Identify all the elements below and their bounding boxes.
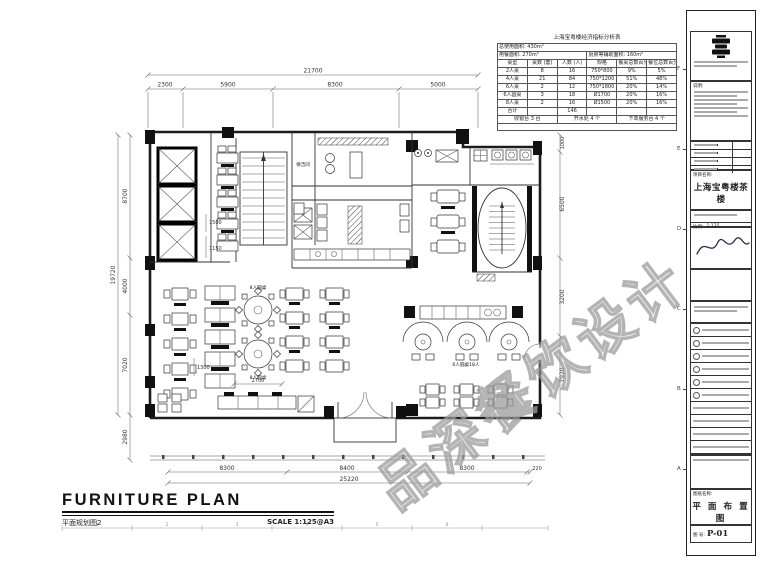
dim-inner-2700: 2700 xyxy=(252,378,265,384)
east-booth-strip xyxy=(431,190,465,253)
plan-subtitle-cn: 平面规划图2 xyxy=(62,518,101,528)
dim-left-2: 4000 xyxy=(122,278,129,293)
title-block: F E D C B A 说明: xyxy=(686,10,756,556)
title-underline-thin xyxy=(62,515,334,516)
dim-right-2: 6500 xyxy=(559,196,566,211)
econ-footer-row: 收银台 3 台 开水处 4 个 下单服务台 4 个 xyxy=(498,116,677,124)
drawing-number: P-01 xyxy=(707,529,728,539)
waiting-area-tables xyxy=(217,138,238,262)
dim-bot-4: 220 xyxy=(532,466,542,472)
drawing-number-label: 图 号: xyxy=(691,531,707,538)
project-name-box: 项目名称: 上海宝粤楼茶楼 xyxy=(690,170,752,210)
economic-indicator-table: 上海宝粤楼经济指标分析表 总使用面积: 430m² 用餐面积: 270m² 厨房… xyxy=(497,34,677,131)
dim-bot-2: 8400 xyxy=(339,465,354,472)
sheet-footer: FURNITURE PLAN 平面规划图2 SCALE 1:125@A3 xyxy=(62,491,334,528)
dim-top-total: 21700 xyxy=(303,68,322,75)
dim-top-2: 5900 xyxy=(220,82,235,89)
approval-rows xyxy=(690,323,752,455)
title-underline xyxy=(62,511,334,513)
econ-area-dining: 用餐面积: 270m² xyxy=(498,52,587,60)
dim-left-1: 8700 xyxy=(122,188,129,203)
project-name: 上海宝粤楼茶楼 xyxy=(691,181,751,205)
round-table-label-a: 8人圆桌 xyxy=(250,284,267,291)
dim-left-3: 7020 xyxy=(122,357,129,372)
dim-right-4: 7920 xyxy=(559,367,566,382)
dim-top-1: 2300 xyxy=(157,82,172,89)
kitchen-block: 保洁间 xyxy=(292,132,412,268)
econ-row: 8人桌2 16Ø1500 20%16% xyxy=(498,100,677,108)
dim-inner-1500: 1500 xyxy=(209,220,222,226)
project-label: 项目名称: xyxy=(691,171,751,178)
dim-bot-3: 8300 xyxy=(459,465,474,472)
main-staircase xyxy=(240,152,287,245)
dim-bot-total: 25220 xyxy=(339,476,358,483)
scale-rows: 比例: 1:125 xyxy=(690,210,752,227)
ruler-6: 6 xyxy=(446,522,449,527)
econ-area-total: 总使用面积: 430m² xyxy=(498,44,677,52)
zone-letter: E xyxy=(677,146,680,152)
econ-area-kitchen: 厨房等辅助面积: 160m² xyxy=(587,52,677,60)
zone-letter: C xyxy=(677,306,681,312)
dim-top-4: 5000 xyxy=(430,82,445,89)
dim-bot-1: 8300 xyxy=(219,465,234,472)
oval-staircase xyxy=(472,186,532,281)
zone-letter: A xyxy=(677,466,681,472)
round-tables-8p: 8人圆桌 8人圆桌 xyxy=(235,284,280,381)
econ-row: 4人桌21 84750*1200 51%48% xyxy=(498,76,677,84)
dim-right-1: 1000 xyxy=(560,137,566,150)
dim-left-4: 2980 xyxy=(122,429,129,444)
revision-table xyxy=(690,141,752,170)
dim-inner-1150: 1150 xyxy=(209,246,222,252)
econ-header-row: 桌型桌数 (套) 人数 (人)规格 餐桌总数百分比餐位总数百分比 xyxy=(498,60,677,68)
drawing-name: 平 面 布 置 图 xyxy=(691,500,751,524)
fine-print-lines xyxy=(690,301,752,323)
company-logo-box xyxy=(690,31,752,81)
dim-right-3: 3200 xyxy=(559,289,566,304)
fine-print-lines xyxy=(694,61,748,63)
drawing-name-label: 图纸名称: xyxy=(691,490,751,497)
southeast-dining: 6人圆桌18人 xyxy=(403,306,529,408)
zone-letter: B xyxy=(677,386,681,392)
notes-box: 说明: xyxy=(690,81,752,141)
restroom-service-rooms xyxy=(412,147,540,185)
econ-total-row: 合计 146 xyxy=(498,108,677,116)
structural-columns xyxy=(145,127,542,418)
dim-inner-1300: 1300 xyxy=(197,365,210,371)
econ-row: 6人圆桌3 18Ø1700 20%16% xyxy=(498,92,677,100)
notes-label: 说明: xyxy=(691,82,751,89)
ruler-5: 5 xyxy=(376,522,379,527)
signature-box xyxy=(690,227,752,269)
zone-letter: F xyxy=(677,66,680,72)
signature xyxy=(691,228,753,266)
company-logo xyxy=(709,35,733,59)
booth6-label: 6人圆桌18人 xyxy=(452,361,480,368)
zone-letter: D xyxy=(677,226,681,232)
plan-scale: SCALE 1:125@A3 xyxy=(267,518,334,528)
drawing-sheet: 保洁间 xyxy=(0,0,760,568)
econ-row: 2人桌8 16750*800 9%5% xyxy=(498,68,677,76)
drawing-number-box: 图 号: P-01 xyxy=(690,525,752,543)
dim-top-3: 8300 xyxy=(327,82,342,89)
econ-row: 6人桌2 12750*1800 20%14% xyxy=(498,84,677,92)
drawing-name-box: 图纸名称: 平 面 布 置 图 xyxy=(690,489,752,525)
cleaning-room-label: 保洁间 xyxy=(296,161,310,168)
econ-table-title: 上海宝粤楼经济指标分析表 xyxy=(498,34,677,44)
dim-left-total: 19720 xyxy=(110,265,117,284)
plan-title: FURNITURE PLAN xyxy=(62,491,334,510)
